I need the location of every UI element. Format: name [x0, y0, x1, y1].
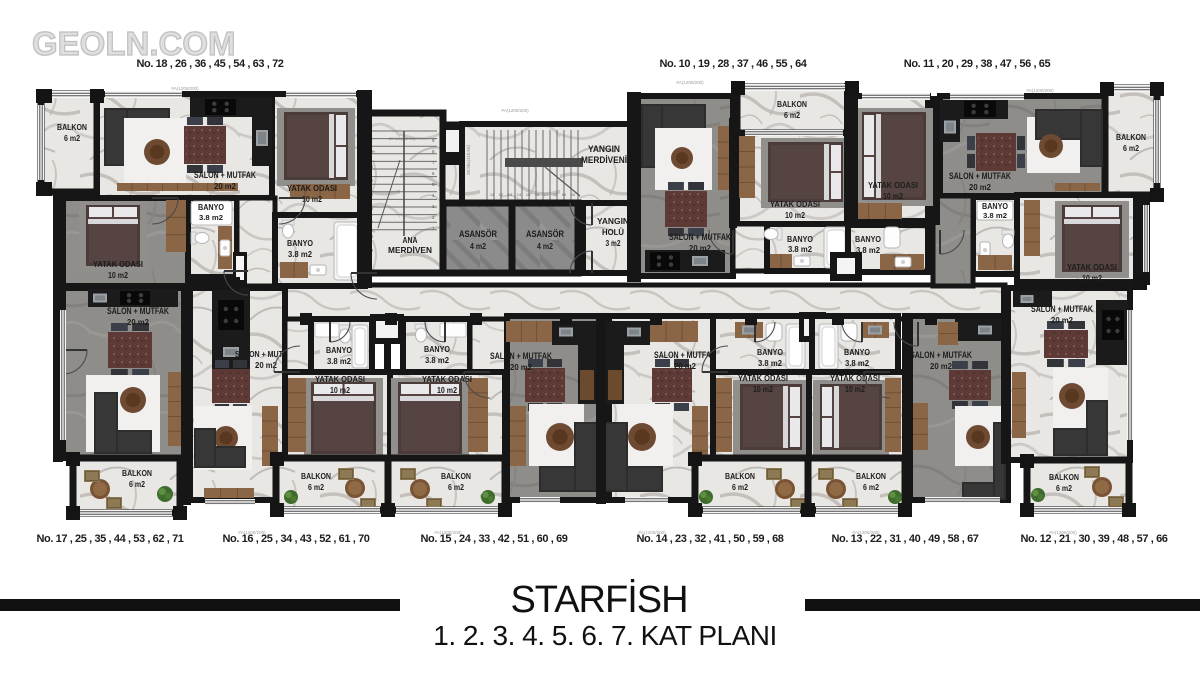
svg-text:YATAK ODASI: YATAK ODASI: [770, 199, 820, 209]
svg-text:20 m2: 20 m2: [674, 361, 696, 371]
svg-text:6 m2: 6 m2: [308, 483, 324, 492]
svg-text:ANA: ANA: [403, 235, 418, 245]
svg-text:17: 17: [544, 192, 549, 197]
svg-text:YATAK ODASI: YATAK ODASI: [738, 373, 788, 383]
svg-text:3.8 m2: 3.8 m2: [788, 245, 813, 254]
svg-text:20 m2: 20 m2: [510, 362, 532, 372]
svg-text:#A(1200/200): #A(1200/200): [501, 108, 529, 113]
svg-text:15: 15: [526, 192, 531, 197]
svg-text:12: 12: [499, 192, 504, 197]
svg-text:20.98x(118.50): 20.98x(118.50): [389, 136, 416, 141]
svg-text:20 m2: 20 m2: [214, 181, 236, 191]
svg-text:10 m2: 10 m2: [437, 386, 457, 395]
svg-text:No. 10 , 19 , 28 , 37 , 46 , 5: No. 10 , 19 , 28 , 37 , 46 , 55 , 64: [659, 58, 807, 70]
svg-text:SALON + MUTFAK: SALON + MUTFAK: [1031, 304, 1093, 314]
svg-text:BALKON: BALKON: [856, 471, 886, 481]
svg-text:10 m2: 10 m2: [1082, 274, 1102, 283]
svg-text:20 m2: 20 m2: [689, 243, 711, 253]
svg-text:No. 16 , 25 , 34 , 43 , 52 , 6: No. 16 , 25 , 34 , 43 , 52 , 61 , 70: [222, 533, 369, 545]
svg-text:SALON + MUTFAK: SALON + MUTFAK: [949, 171, 1011, 181]
svg-text:16: 16: [535, 192, 540, 197]
svg-text:YATAK ODASI: YATAK ODASI: [315, 374, 365, 384]
svg-text:3.8 m2: 3.8 m2: [288, 250, 313, 259]
svg-text:No. 13 , 22 , 31 , 40 , 49 , 5: No. 13 , 22 , 31 , 40 , 49 , 58 , 67: [831, 533, 978, 545]
svg-text:BALKON: BALKON: [1049, 472, 1079, 482]
svg-text:6 m2: 6 m2: [448, 483, 464, 492]
svg-text:10 m2: 10 m2: [108, 271, 128, 280]
svg-text:10 m2: 10 m2: [883, 192, 903, 201]
svg-text:3 m2: 3 m2: [606, 239, 621, 248]
svg-text:#A(1200/200): #A(1200/200): [1026, 88, 1054, 93]
svg-text:14: 14: [517, 192, 522, 197]
svg-text:10 m2: 10 m2: [785, 211, 805, 220]
svg-text:BANYO: BANYO: [287, 238, 313, 248]
svg-text:10 m2: 10 m2: [753, 385, 773, 394]
svg-text:6 m2: 6 m2: [784, 111, 800, 120]
svg-text:ASANSÖR: ASANSÖR: [459, 229, 497, 239]
svg-text:20: 20: [571, 192, 576, 197]
svg-text:SALON + MUTFAK: SALON + MUTFAK: [654, 350, 716, 360]
svg-text:BALKON: BALKON: [777, 99, 807, 109]
svg-text:BALKON: BALKON: [725, 471, 755, 481]
svg-text:20 m2: 20 m2: [1051, 315, 1073, 325]
svg-text:20 m2: 20 m2: [930, 361, 952, 371]
svg-text:BANYO: BANYO: [424, 344, 450, 354]
svg-text:3.8 m2: 3.8 m2: [199, 213, 223, 222]
svg-text:#A(1200/200): #A(1200/200): [171, 86, 199, 91]
svg-text:1. 2. 3. 4. 5. 6. 7. KAT PLANI: 1. 2. 3. 4. 5. 6. 7. KAT PLANI: [433, 620, 777, 651]
svg-text:YATAK ODASI: YATAK ODASI: [93, 259, 143, 269]
svg-text:MERDİVENİ: MERDİVENİ: [581, 155, 627, 165]
svg-text:BANYO: BANYO: [326, 345, 352, 355]
svg-text:6 m2: 6 m2: [1123, 144, 1139, 153]
svg-text:BANYO: BANYO: [982, 202, 1008, 211]
svg-text:10 m2: 10 m2: [330, 386, 350, 395]
svg-text:BALKON: BALKON: [1116, 132, 1146, 142]
svg-text:YATAK ODASI: YATAK ODASI: [830, 373, 880, 383]
svg-text:YATAK ODASI: YATAK ODASI: [1067, 262, 1117, 272]
svg-text:No. 18 , 26 , 36 , 45 , 54 , 6: No. 18 , 26 , 36 , 45 , 54 , 63 , 72: [136, 58, 283, 70]
svg-text:10 m2: 10 m2: [845, 385, 865, 394]
svg-text:20 m2: 20 m2: [969, 182, 991, 192]
svg-text:BANYO: BANYO: [787, 234, 813, 244]
svg-text:BANYO: BANYO: [855, 234, 881, 244]
svg-text:BANYO: BANYO: [198, 203, 224, 212]
svg-text:BALKON: BALKON: [57, 122, 87, 132]
svg-text:3.8 m2: 3.8 m2: [327, 357, 352, 366]
svg-text:SALON + MUTFAK: SALON + MUTFAK: [194, 170, 256, 180]
svg-text:18: 18: [553, 192, 558, 197]
svg-text:HOLÜ: HOLÜ: [602, 227, 624, 237]
svg-text:6 m2: 6 m2: [1056, 484, 1072, 493]
svg-text:YATAK ODASI: YATAK ODASI: [868, 180, 918, 190]
svg-text:BANYO: BANYO: [844, 347, 870, 357]
svg-text:#A(1200/200): #A(1200/200): [676, 80, 704, 85]
svg-text:6 m2: 6 m2: [64, 134, 80, 143]
svg-text:BALKON: BALKON: [301, 471, 331, 481]
svg-text:SALON + MUTFAK: SALON + MUTFAK: [669, 232, 731, 242]
svg-text:YATAK ODASI: YATAK ODASI: [287, 183, 337, 193]
svg-text:YANGIN: YANGIN: [597, 216, 629, 226]
svg-text:STARFİSH: STARFİSH: [510, 578, 687, 621]
svg-text:4 m2: 4 m2: [470, 241, 486, 251]
svg-text:SALON + MUTFAK: SALON + MUTFAK: [910, 350, 972, 360]
svg-text:20 m2: 20 m2: [127, 317, 149, 327]
svg-text:3.8 m2: 3.8 m2: [983, 211, 1007, 220]
svg-text:20.98x(118.50): 20.98x(118.50): [466, 145, 471, 175]
svg-text:6 m2: 6 m2: [863, 483, 879, 492]
svg-text:BALKON: BALKON: [441, 471, 471, 481]
svg-text:No. 15 , 24 , 33 , 42 , 51 , 6: No. 15 , 24 , 33 , 42 , 51 , 60 , 69: [420, 533, 567, 545]
svg-text:SALON + MUTFAK: SALON + MUTFAK: [490, 351, 552, 361]
svg-text:ASANSÖR: ASANSÖR: [526, 229, 564, 239]
svg-text:3.8 m2: 3.8 m2: [856, 246, 881, 255]
svg-text:4 m2: 4 m2: [537, 241, 553, 251]
svg-text:19: 19: [562, 192, 567, 197]
svg-text:YANGIN: YANGIN: [588, 144, 620, 154]
svg-text:GEOLN.COM: GEOLN.COM: [32, 25, 236, 62]
svg-text:3.8 m2: 3.8 m2: [845, 359, 870, 368]
svg-text:6 m2: 6 m2: [129, 480, 145, 489]
svg-text:BANYO: BANYO: [757, 347, 783, 357]
svg-text:13: 13: [508, 192, 513, 197]
svg-text:SALON + MUTFAK: SALON + MUTFAK: [107, 306, 169, 316]
svg-text:No. 12 , 21 , 30 , 39 , 48 , 5: No. 12 , 21 , 30 , 39 , 48 , 57 , 66: [1020, 533, 1167, 545]
svg-text:No. 14 , 23 , 32 , 41 , 50 , 5: No. 14 , 23 , 32 , 41 , 50 , 59 , 68: [636, 533, 783, 545]
svg-text:MERDİVEN: MERDİVEN: [388, 245, 432, 255]
svg-text:6 m2: 6 m2: [732, 483, 748, 492]
svg-text:3.8 m2: 3.8 m2: [758, 359, 783, 368]
svg-text:No. 17 , 25 , 35 , 44 , 53 , 6: No. 17 , 25 , 35 , 44 , 53 , 62 , 71: [36, 533, 183, 545]
svg-text:BALKON: BALKON: [122, 468, 152, 478]
svg-text:No. 11 , 20 , 29 , 38 , 47 , 5: No. 11 , 20 , 29 , 38 , 47 , 56 , 65: [904, 58, 1051, 70]
svg-text:3.8 m2: 3.8 m2: [425, 356, 450, 365]
